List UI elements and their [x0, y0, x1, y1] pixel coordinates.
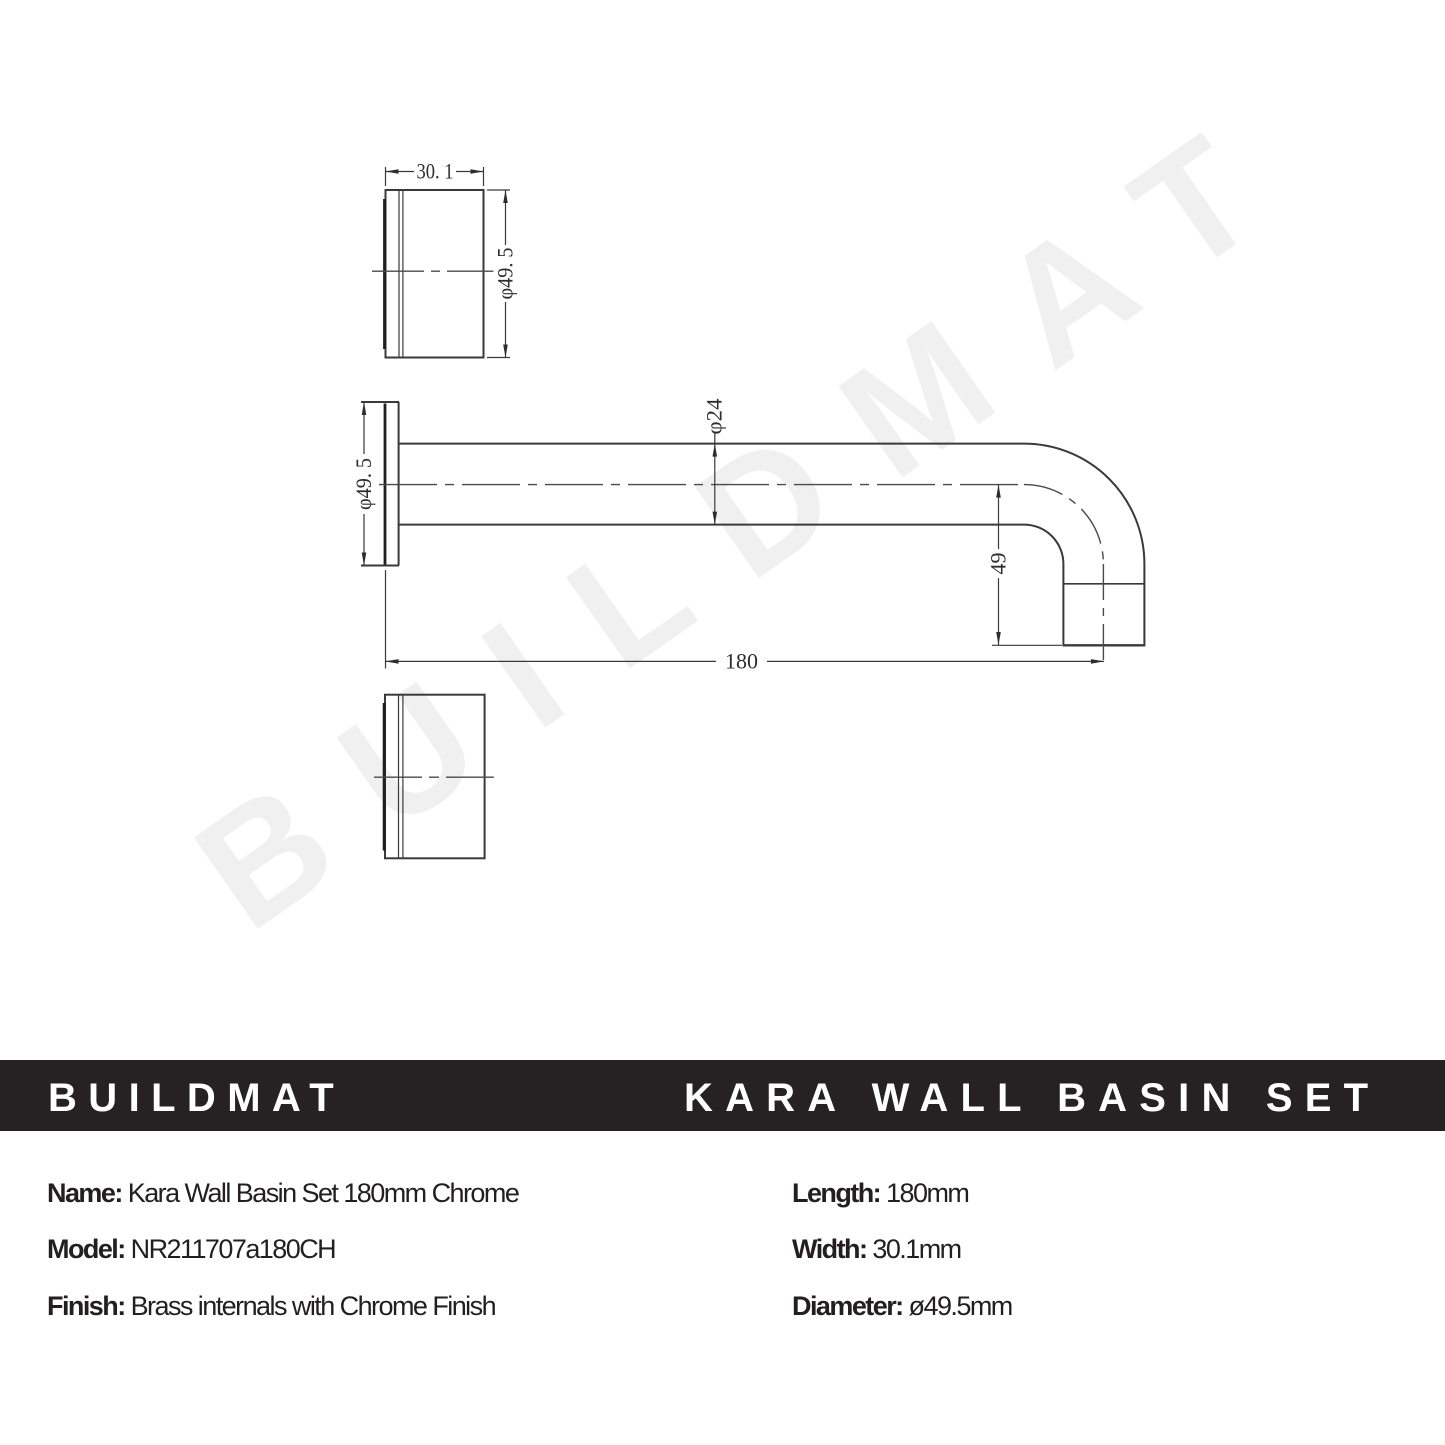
svg-text:φ49. 5: φ49. 5	[351, 458, 376, 510]
svg-text:30. 1: 30. 1	[417, 159, 454, 184]
svg-text:180: 180	[725, 649, 758, 674]
svg-text:φ49. 5: φ49. 5	[493, 248, 518, 300]
svg-text:BUILDMAT: BUILDMAT	[165, 69, 1335, 963]
svg-text:49: 49	[986, 553, 1011, 575]
svg-text:φ24: φ24	[702, 399, 727, 435]
